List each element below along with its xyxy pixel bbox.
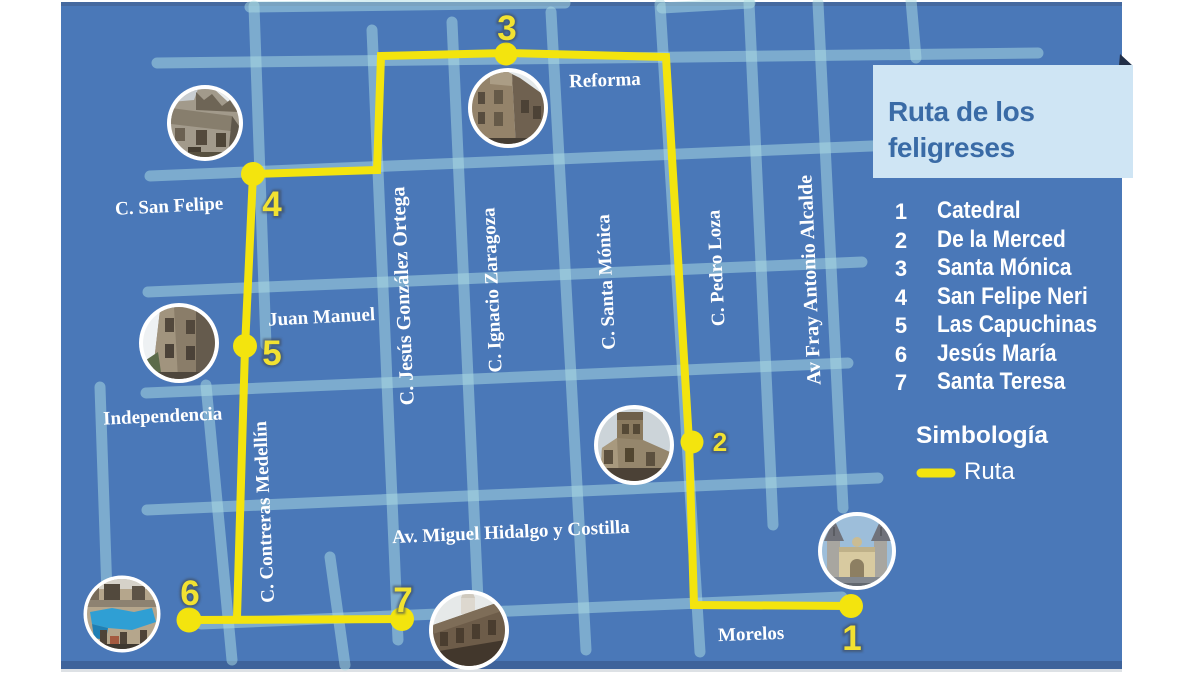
svg-text:Las Capuchinas: Las Capuchinas xyxy=(937,311,1097,338)
svg-text:3: 3 xyxy=(497,9,516,48)
svg-text:Ruta: Ruta xyxy=(964,458,1015,485)
svg-text:Jesús María: Jesús María xyxy=(937,340,1057,367)
svg-text:2: 2 xyxy=(895,228,907,253)
svg-text:4: 4 xyxy=(895,285,908,310)
svg-text:feligreses: feligreses xyxy=(888,132,1015,163)
svg-text:6: 6 xyxy=(180,574,199,613)
svg-text:Ruta de los: Ruta de los xyxy=(888,96,1035,127)
svg-text:6: 6 xyxy=(895,342,907,367)
svg-text:5: 5 xyxy=(262,334,281,373)
svg-text:Reforma: Reforma xyxy=(569,69,642,93)
svg-text:1: 1 xyxy=(895,199,907,224)
svg-text:Simbología: Simbología xyxy=(916,422,1048,449)
svg-text:4: 4 xyxy=(262,185,282,224)
svg-text:San Felipe Neri: San Felipe Neri xyxy=(937,283,1088,310)
svg-text:Santa Teresa: Santa Teresa xyxy=(937,368,1066,395)
svg-text:Catedral: Catedral xyxy=(937,197,1021,224)
svg-text:De la Merced: De la Merced xyxy=(937,226,1066,253)
svg-text:Morelos: Morelos xyxy=(718,623,785,646)
svg-text:1: 1 xyxy=(842,619,861,658)
svg-text:7: 7 xyxy=(895,370,907,395)
svg-text:2: 2 xyxy=(713,427,727,457)
svg-text:7: 7 xyxy=(393,581,412,620)
svg-text:5: 5 xyxy=(895,313,907,338)
svg-text:Santa Mónica: Santa Mónica xyxy=(937,254,1072,281)
svg-text:3: 3 xyxy=(895,256,907,281)
